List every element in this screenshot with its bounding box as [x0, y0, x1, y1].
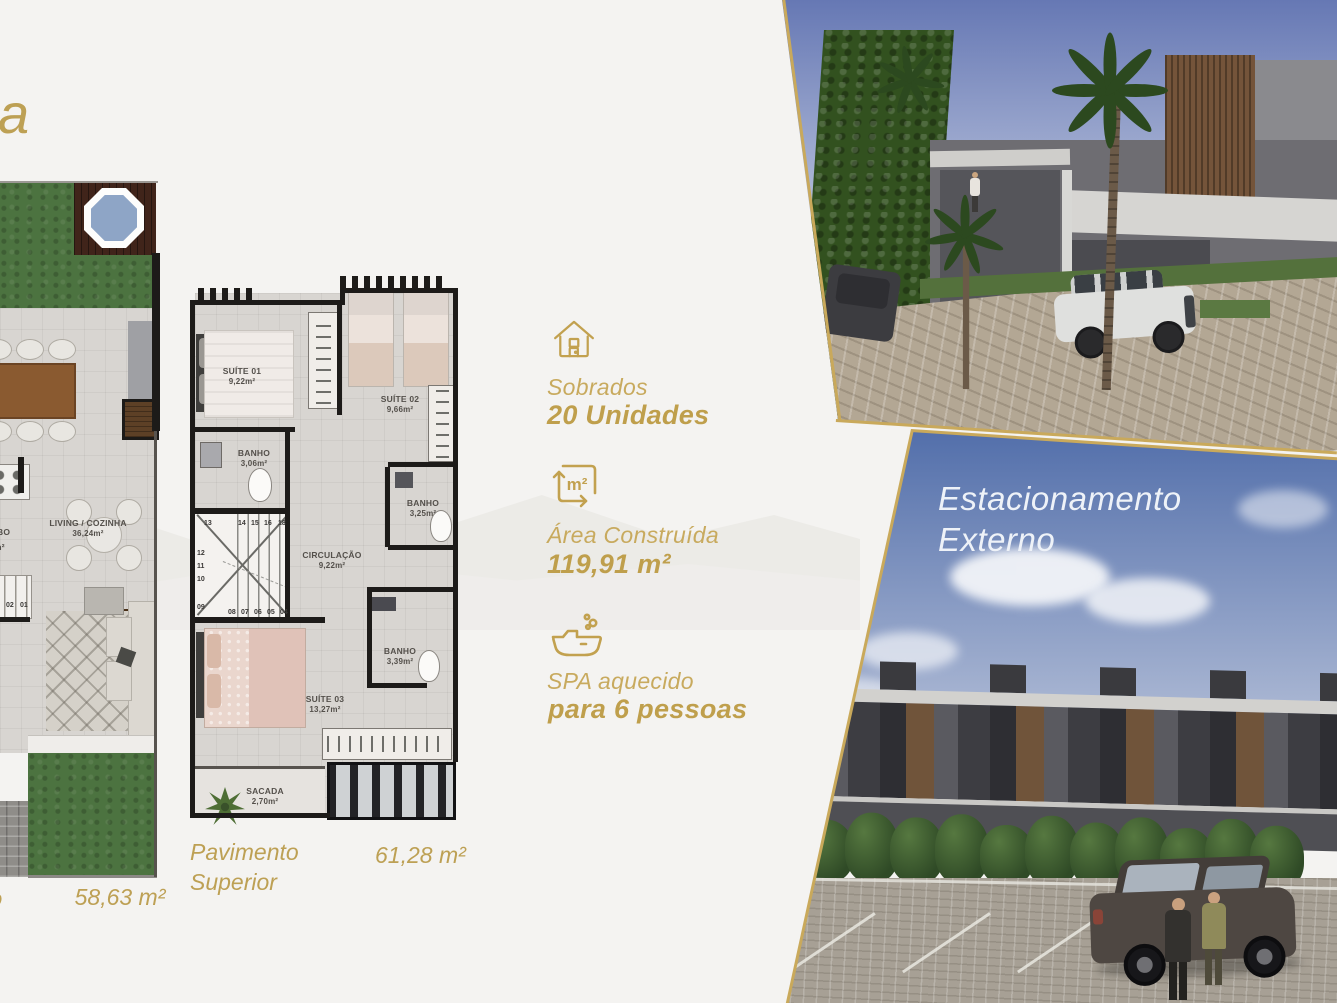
room-name: SUÍTE 03	[306, 694, 344, 704]
spa-symbol	[84, 188, 144, 248]
hanger-marks	[316, 317, 331, 404]
wall	[453, 288, 458, 762]
facade-photo	[770, 0, 1337, 470]
chair-symbol	[16, 421, 44, 442]
front-yard-grass	[28, 753, 154, 877]
room-area: 3,06m²	[224, 459, 284, 469]
wall	[367, 587, 458, 592]
room-label-banho1: BANHO 3,06m²	[224, 448, 284, 469]
stairs-symbol	[0, 575, 32, 619]
bed-symbol	[348, 290, 394, 387]
ottoman-symbol	[84, 587, 124, 615]
room-label-circulacao: CIRCULAÇÃO 9,22m²	[292, 550, 372, 571]
wheel-hub	[1256, 948, 1273, 965]
wall	[285, 432, 290, 622]
room-label-suite1: SUÍTE 01 9,22m²	[202, 366, 282, 387]
stair-number: 11	[197, 563, 204, 570]
dining-table-symbol	[0, 363, 76, 419]
wall	[337, 305, 342, 415]
chair-symbol	[48, 339, 76, 360]
wheel-hub	[1136, 957, 1153, 974]
floor-plan-upper: 13 14 15 16 18 12 11 10 09 08 07 06 05 0…	[190, 272, 458, 824]
hanger-marks	[327, 736, 447, 753]
room-area: 3,25m²	[393, 509, 453, 519]
stair-number: 10	[197, 576, 205, 583]
toilet-symbol	[248, 468, 272, 502]
stair-number: 06	[254, 609, 262, 616]
stair-number: 04	[280, 609, 288, 616]
stair-number: 15	[251, 520, 259, 527]
chair-symbol	[116, 545, 142, 571]
room-label-suite3: SUÍTE 03 13,27m²	[280, 694, 370, 715]
person-legs	[1205, 949, 1212, 985]
stair-number: 16	[264, 520, 272, 527]
person-body	[970, 178, 980, 196]
white-fascia	[930, 149, 1070, 167]
suv-wheel	[1243, 935, 1286, 978]
caption-line1: Pavimento	[190, 838, 299, 868]
wall	[340, 288, 458, 293]
person-legs	[1215, 949, 1222, 985]
stair-number: 12	[197, 550, 205, 557]
ground-floor-partial-caption: o	[0, 886, 2, 912]
plan-bottom-line	[28, 875, 157, 878]
window-hatch	[340, 276, 448, 288]
wall	[388, 462, 458, 467]
wall	[385, 467, 390, 547]
room-label-banho3: BANHO 3,39m²	[370, 646, 430, 667]
plan-right-line	[154, 431, 157, 877]
wall	[195, 508, 290, 514]
wall	[152, 253, 160, 431]
suv-grille	[1184, 295, 1196, 328]
wardrobe-symbol	[322, 728, 452, 760]
feature-value: 119,91 m²	[547, 549, 671, 580]
room-name: BANHO	[384, 646, 416, 656]
chair-symbol	[66, 545, 92, 571]
stair-number: 18	[278, 520, 286, 527]
stair-number: 08	[228, 609, 236, 616]
area-icon-text: m²	[567, 475, 588, 494]
stair-number: 05	[267, 609, 275, 616]
stair-number: 14	[238, 520, 246, 527]
sink-symbol	[200, 442, 222, 468]
stove-symbol	[0, 464, 30, 500]
feature-label: SPA aquecido	[547, 668, 694, 695]
room-area: 3,39m²	[370, 657, 430, 667]
person-legs	[1169, 962, 1177, 1000]
dark-car	[820, 263, 901, 344]
wall	[195, 617, 325, 623]
room-label-living: LIVING / COZINHA 36,24m²	[28, 518, 148, 539]
spa-icon	[547, 606, 607, 668]
area-icon: m²	[549, 456, 605, 514]
room-label-banho2: BANHO 3,25m²	[393, 498, 453, 519]
window-grid	[327, 762, 456, 820]
shower-symbol	[372, 597, 396, 611]
wall	[195, 427, 295, 432]
white-suv	[1052, 267, 1198, 365]
terrace-strip	[28, 735, 154, 754]
partial-title-letter: a	[0, 86, 29, 142]
suv-taillight	[1093, 909, 1104, 924]
stair-number: 01	[20, 602, 28, 609]
parking-photo: Estacionamento Externo	[770, 420, 1337, 1003]
wall	[190, 300, 195, 818]
suv-wheel	[1123, 943, 1166, 986]
room-name: LIVING / COZINHA	[49, 518, 126, 528]
room-name: BANHO	[238, 448, 270, 458]
wardrobe-symbol	[308, 312, 339, 409]
dark-suv	[1088, 846, 1307, 983]
floor-plan-ground: LIVING / COZINHA 36,24m² BO m² 03 02 01	[0, 181, 162, 881]
stair-number: 07	[241, 609, 249, 616]
cloud	[1085, 578, 1210, 624]
room-area: 9,22m²	[292, 561, 372, 571]
wall	[18, 457, 24, 493]
person-figure	[1202, 892, 1226, 987]
wall	[340, 288, 345, 305]
bed-symbol	[403, 290, 449, 387]
grass-strip	[1200, 300, 1270, 318]
presentation-slide: a LIVING / COZINHA 36,24m²	[0, 0, 1337, 1003]
spa-water	[91, 195, 137, 241]
room-name: SUÍTE 01	[223, 366, 261, 376]
title-line2: Externo	[938, 519, 1182, 560]
caption-line2: Superior	[190, 868, 299, 898]
upper-floor-area: 61,28 m²	[375, 842, 466, 869]
person-legs	[972, 196, 978, 212]
room-name: CIRCULAÇÃO	[302, 550, 361, 560]
shower-symbol	[395, 472, 413, 488]
wall	[190, 813, 330, 818]
cloud	[1238, 490, 1328, 528]
sofa-symbol	[128, 601, 156, 748]
wall	[195, 300, 345, 305]
wall	[367, 592, 372, 683]
person-figure	[970, 172, 980, 212]
window-hatch	[198, 288, 258, 300]
stair-number: 13	[204, 520, 212, 527]
room-name: SUÍTE 02	[381, 394, 419, 404]
wood-slat-panel	[1165, 55, 1255, 205]
wall	[388, 545, 458, 550]
stairs-symbol	[195, 514, 285, 617]
counter-symbol	[128, 321, 153, 399]
room-name: BANHO	[407, 498, 439, 508]
feature-label: Área Construída	[547, 522, 719, 549]
person-figure	[1165, 898, 1191, 1000]
sofa-cushion	[106, 661, 132, 701]
bush	[755, 811, 809, 882]
room-area: 36,24m²	[28, 529, 148, 539]
stair-number: 02	[6, 602, 14, 609]
chair-symbol	[16, 339, 44, 360]
facade-pattern	[770, 700, 1337, 810]
house-icon	[550, 311, 598, 367]
feature-value: 20 Unidades	[547, 400, 709, 431]
feature-value: para 6 pessoas	[548, 694, 747, 725]
room-area: 13,27m²	[280, 705, 370, 715]
bed-symbol	[196, 632, 204, 718]
room-area: 9,22m²	[202, 377, 282, 387]
room-area: 9,66m²	[360, 405, 440, 415]
person-body	[1202, 903, 1226, 949]
pillow-symbol	[207, 674, 221, 708]
person-legs	[1179, 962, 1187, 1000]
title-line1: Estacionamento	[938, 478, 1182, 519]
upper-floor-caption: Pavimento Superior	[190, 838, 299, 898]
feature-label: Sobrados	[547, 374, 648, 401]
wall	[367, 683, 427, 688]
pillow-symbol	[207, 634, 221, 668]
paver-area	[0, 801, 28, 877]
ground-floor-area: 58,63 m²	[64, 884, 176, 911]
wall	[0, 617, 30, 622]
stair-number: 09	[197, 604, 205, 611]
chair-symbol	[48, 421, 76, 442]
person-body	[1165, 910, 1191, 962]
room-label-lavabo-partial: BO	[0, 527, 10, 538]
room-name: SACADA	[246, 786, 284, 796]
room-area: 2,70m²	[230, 797, 300, 807]
room-label-suite2: SUÍTE 02 9,66m²	[360, 394, 440, 415]
balcony-door-line	[195, 766, 325, 769]
room-label-sacada: SACADA 2,70m²	[230, 786, 300, 807]
room-label-lavabo-area-partial: m²	[0, 542, 5, 553]
parking-photo-title: Estacionamento Externo	[938, 478, 1182, 561]
